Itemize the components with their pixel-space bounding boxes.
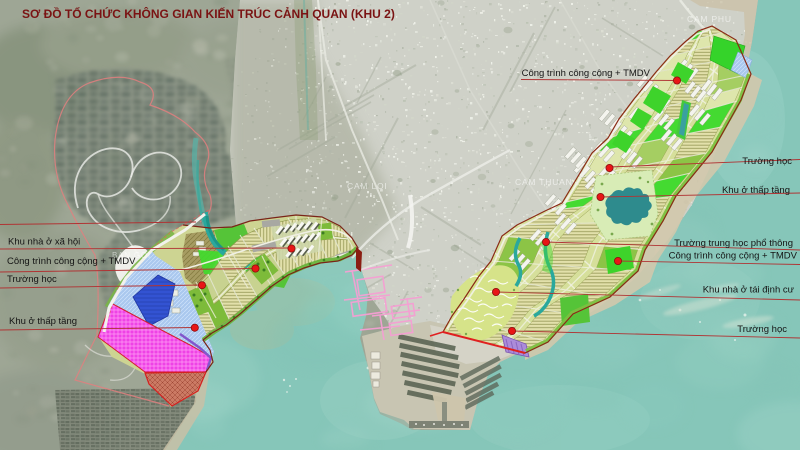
svg-text:Khu nhà ở tái định cư: Khu nhà ở tái định cư (703, 285, 795, 296)
svg-text:Trường học: Trường học (742, 156, 792, 167)
svg-text:CAM THUAN: CAM THUAN (515, 177, 573, 187)
svg-text:CAM LOI: CAM LOI (347, 181, 388, 191)
svg-text:Trường học: Trường học (7, 274, 57, 285)
svg-text:Trường học: Trường học (737, 324, 787, 335)
svg-text:Công trình công cộng + TMDV: Công trình công cộng + TMDV (669, 251, 798, 262)
svg-text:SƠ ĐỒ TỔ CHỨC KHÔNG GIAN KIẾN: SƠ ĐỒ TỔ CHỨC KHÔNG GIAN KIẾN TRÚC CẢNH … (22, 6, 395, 21)
svg-text:Công trình công cộng + TMDV: Công trình công cộng + TMDV (7, 256, 136, 267)
svg-text:Khu ở thấp tầng: Khu ở thấp tầng (9, 316, 77, 327)
svg-text:Trường trung học phổ thông: Trường trung học phổ thông (674, 238, 793, 249)
svg-text:CAM PHU: CAM PHU (687, 14, 732, 24)
svg-text:Công trình công cộng + TMDV: Công trình công cộng + TMDV (522, 68, 651, 79)
svg-text:Khu nhà ở xã hội: Khu nhà ở xã hội (8, 237, 80, 248)
svg-text:Khu ở thấp tầng: Khu ở thấp tầng (722, 185, 790, 196)
